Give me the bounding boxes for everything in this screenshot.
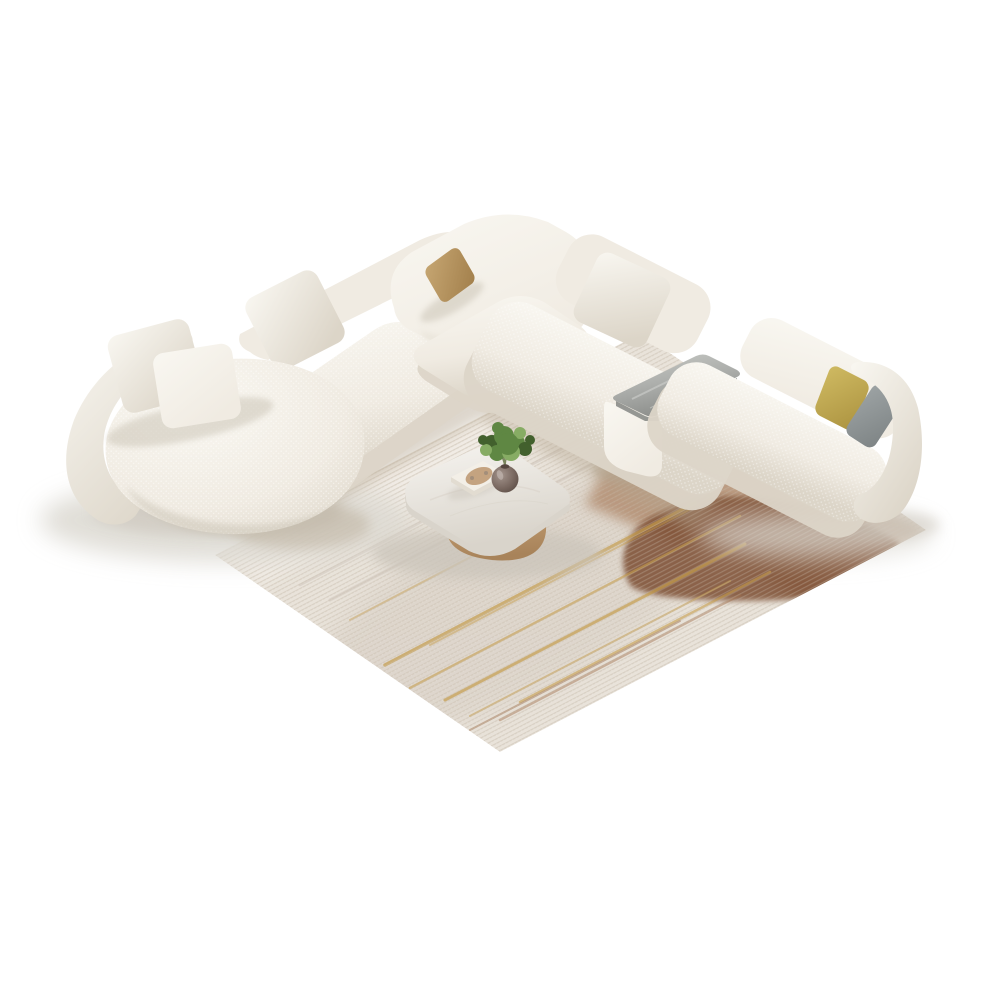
leaf-cluster [525,435,535,445]
leaf-cluster [497,433,519,455]
white-pillow-face [152,342,243,430]
chaise-pillow-front [152,342,243,430]
book-art-detail [470,476,474,480]
living-room-product-render [0,0,1000,1000]
book-art-detail [484,471,488,475]
leaf-cluster [478,435,488,445]
leaf-cluster [492,422,504,434]
vase [492,466,519,493]
scene-svg [0,0,1000,1000]
vase-mouth [501,464,510,468]
leaf-cluster [480,444,492,456]
